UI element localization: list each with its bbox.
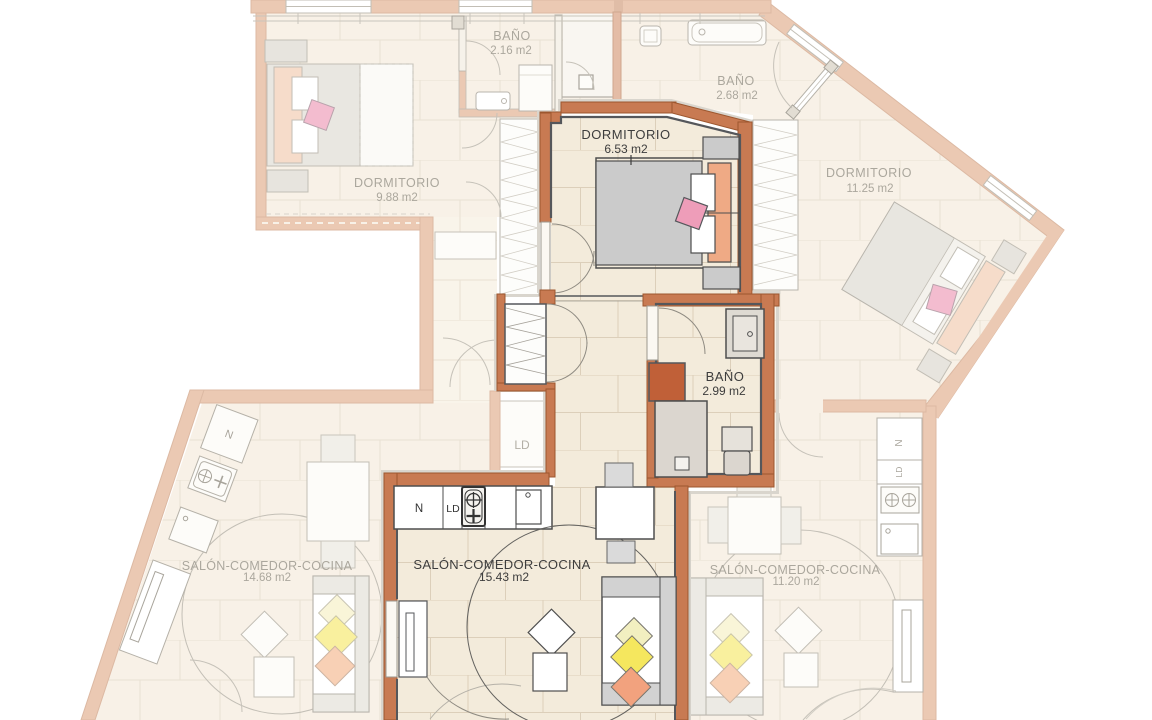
svg-text:2.16 m2: 2.16 m2 [490, 45, 532, 57]
svg-text:LD: LD [894, 467, 904, 478]
svg-text:2.99 m2: 2.99 m2 [702, 384, 746, 398]
svg-text:11.25 m2: 11.25 m2 [846, 183, 893, 195]
svg-text:14.68 m2: 14.68 m2 [243, 572, 291, 584]
svg-text:DORMITORIO: DORMITORIO [826, 166, 912, 180]
svg-text:15.43 m2: 15.43 m2 [479, 570, 529, 584]
svg-text:DORMITORIO: DORMITORIO [354, 176, 440, 190]
svg-text:SALÓN-COMEDOR-COCINA: SALÓN-COMEDOR-COCINA [710, 562, 881, 577]
svg-text:N: N [415, 503, 423, 515]
svg-text:DORMITORIO: DORMITORIO [581, 127, 670, 142]
svg-text:9.88 m2: 9.88 m2 [376, 192, 418, 204]
svg-text:BAÑO: BAÑO [706, 369, 745, 384]
svg-text:N: N [894, 439, 905, 446]
svg-text:BAÑO: BAÑO [717, 74, 754, 88]
svg-text:SALÓN-COMEDOR-COCINA: SALÓN-COMEDOR-COCINA [182, 558, 353, 573]
svg-text:BAÑO: BAÑO [493, 29, 530, 43]
svg-text:11.20 m2: 11.20 m2 [772, 576, 819, 588]
svg-text:LD: LD [446, 503, 460, 515]
svg-text:2.68 m2: 2.68 m2 [716, 90, 758, 102]
svg-text:LD: LD [514, 438, 530, 452]
svg-text:6.53 m2: 6.53 m2 [604, 142, 648, 156]
